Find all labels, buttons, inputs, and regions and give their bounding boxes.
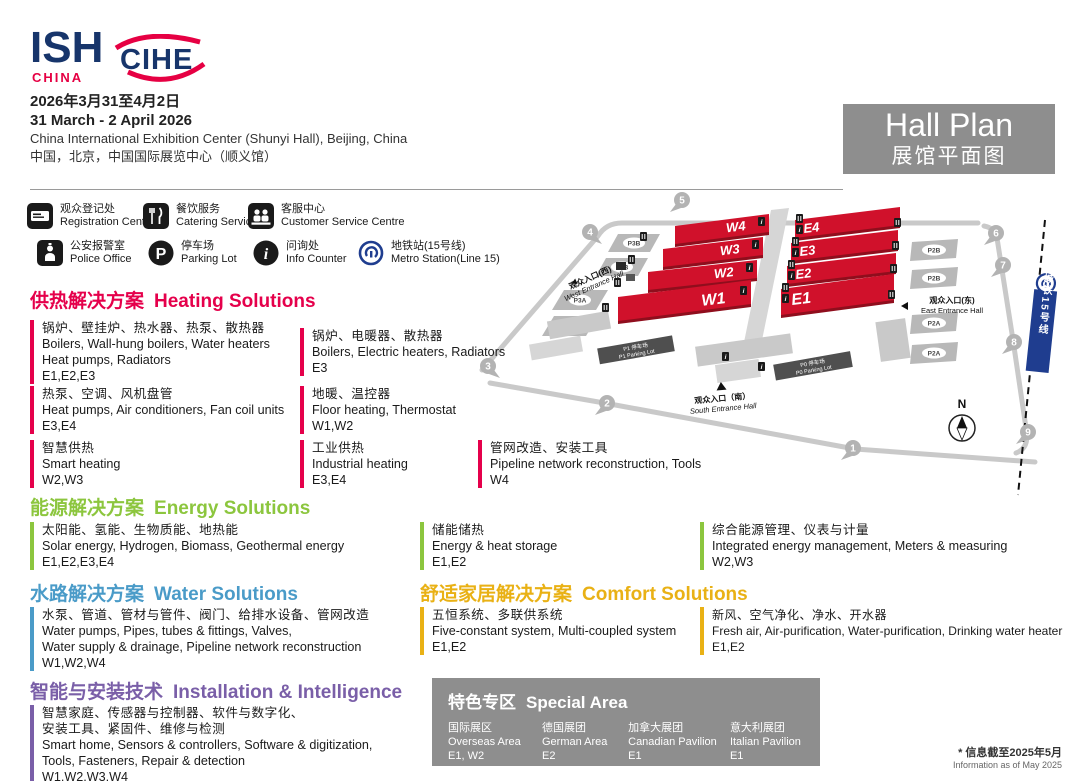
catering-icon bbox=[640, 232, 647, 241]
heating-item-7: 管网改造、安装工具 Pipeline network reconstructio… bbox=[478, 440, 701, 488]
section-title-cn: 能源解决方案 bbox=[30, 498, 144, 519]
legend-catering: 餐饮服务Catering Service bbox=[143, 203, 257, 229]
gate-pin-1: 1 bbox=[841, 440, 861, 460]
metro-line-label: 城铁15号线 bbox=[1035, 271, 1054, 336]
svg-text:i: i bbox=[791, 273, 793, 280]
catering-icon bbox=[894, 218, 901, 227]
legend-label-en: Registration Centre bbox=[60, 216, 155, 229]
gate-pin-6: 6 bbox=[984, 225, 1004, 245]
info-icon: i bbox=[752, 240, 759, 249]
svg-text:7: 7 bbox=[1000, 261, 1006, 272]
section-title-en: Installation & Intelligence bbox=[173, 682, 402, 703]
legend-label-en: Info Counter bbox=[286, 253, 347, 266]
gate-pin-9: 9 bbox=[1016, 424, 1036, 444]
metro-logo-icon bbox=[1036, 273, 1056, 293]
gate-pin-7: 7 bbox=[991, 257, 1011, 277]
special-area-title-cn: 特色专区 bbox=[448, 693, 516, 712]
section-title-en: Water Solutions bbox=[154, 584, 298, 605]
svg-text:4: 4 bbox=[587, 228, 593, 239]
p1-parking-label-cn: P1 停车场 bbox=[623, 341, 649, 353]
water-item-1: 水泵、管道、管材与管件、阀门、给排水设备、管网改造 Water pumps, P… bbox=[30, 607, 369, 671]
heating-item-2: 热泵、空调、风机盘管 Heat pumps, Air conditioners,… bbox=[30, 386, 284, 434]
cihe-logo: CIHE bbox=[112, 34, 207, 86]
central-corridor bbox=[742, 208, 789, 352]
legend-label-en: Police Office bbox=[70, 253, 132, 266]
special-area-col-italian: 意大利展团 Italian Pavilion E1 bbox=[730, 721, 820, 763]
section-title-cn: 舒适家居解决方案 bbox=[420, 584, 572, 605]
svg-text:9: 9 bbox=[1025, 428, 1031, 439]
catering-icon bbox=[892, 241, 899, 250]
info-icon: i bbox=[758, 362, 765, 371]
legend-customer-service: 客服中心Customer Service Centre bbox=[248, 203, 405, 229]
header-divider bbox=[30, 189, 843, 190]
svg-text:i: i bbox=[785, 296, 787, 303]
customer-service-icon: i bbox=[722, 352, 729, 361]
hall-W2 bbox=[648, 260, 757, 290]
info-icon: i bbox=[253, 240, 279, 266]
info-icon: i bbox=[740, 286, 747, 295]
intelligence-section-title: 智能与安装技术Installation & Intelligence bbox=[30, 677, 402, 704]
special-area-col-canadian: 加拿大展团 Canadian Pavilion E1 bbox=[628, 721, 730, 763]
comfort-item-1: 五恒系统、多联供系统 Five-constant system, Multi-c… bbox=[420, 607, 676, 655]
metro-line15-badge: 城铁15号线 bbox=[1026, 270, 1059, 373]
svg-text:i: i bbox=[749, 265, 751, 272]
heating-item-4: 锅炉、电暖器、散热器 Boilers, Electric heaters, Ra… bbox=[300, 328, 505, 376]
ish-logo: ISH bbox=[30, 26, 103, 70]
legend-label-en: Parking Lot bbox=[181, 253, 237, 266]
heating-item-1: 锅炉、壁挂炉、热水器、热泵、散热器 Boilers, Wall-hung boi… bbox=[30, 320, 270, 384]
parking-label: P2B bbox=[928, 276, 941, 283]
gate-pin-5: 5 bbox=[670, 192, 690, 212]
section-title-cn: 水路解决方案 bbox=[30, 584, 144, 605]
venue-en: China International Exhibition Center (S… bbox=[30, 130, 407, 148]
catering-icon bbox=[788, 260, 795, 269]
south-entrance-arrow-icon bbox=[716, 382, 727, 391]
event-info: 2026年3月31至4月2日 31 March - 2 April 2026 C… bbox=[30, 92, 407, 166]
parking-west-group: P3B P3B P3A P3A bbox=[542, 234, 660, 336]
date-cn: 2026年3月31至4月2日 bbox=[30, 92, 407, 111]
hall-label-E1: E1 bbox=[790, 290, 812, 309]
p1-parking-bar: P1 停车场 P1 Parking Lot bbox=[597, 335, 675, 364]
svg-text:8: 8 bbox=[1011, 338, 1017, 349]
svg-text:i: i bbox=[743, 288, 745, 295]
svg-text:5: 5 bbox=[679, 196, 685, 207]
svg-text:i: i bbox=[264, 246, 269, 263]
south-entrance-label: 观众入口（南） South Entrance Hall bbox=[688, 379, 757, 416]
compass-n-label: N bbox=[958, 397, 967, 411]
cihe-logo-text: CIHE bbox=[120, 44, 193, 77]
svg-text:2: 2 bbox=[604, 399, 610, 410]
svg-text:1: 1 bbox=[850, 444, 856, 455]
south-entrance-cn: 观众入口（南） bbox=[694, 391, 751, 406]
heating-item-5: 地暖、温控器 Floor heating, Thermostat W1,W2 bbox=[300, 386, 456, 434]
hall-label-E3: E3 bbox=[799, 242, 817, 259]
catering-icon bbox=[614, 278, 621, 287]
gate-pin-8: 8 bbox=[1002, 334, 1022, 354]
parking-label: P2B bbox=[928, 248, 941, 255]
footnote-cn: * 信息截至2025年5月 bbox=[953, 744, 1062, 760]
catering-icon bbox=[602, 303, 609, 312]
hall-W4 bbox=[675, 214, 769, 244]
west-entrance-arrow-icon bbox=[571, 279, 578, 287]
heating-section-title: 供热解决方案Heating Solutions bbox=[30, 286, 316, 313]
west-building bbox=[529, 336, 583, 361]
special-area-title-en: Special Area bbox=[526, 693, 627, 712]
metro-badge-bg bbox=[1026, 289, 1057, 373]
catering-icon bbox=[796, 214, 803, 223]
west-entrance-kiosk bbox=[616, 262, 626, 270]
comfort-section-title: 舒适家居解决方案Comfort Solutions bbox=[420, 579, 748, 606]
p0-parking-bar: P0 停车场 P0 Parking Lot bbox=[773, 351, 853, 380]
legend-info-counter: i 问询处Info Counter bbox=[253, 240, 347, 266]
section-title-cn: 智能与安装技术 bbox=[30, 682, 163, 703]
footnote: * 信息截至2025年5月 Information as of May 2025 bbox=[953, 744, 1062, 770]
special-area-col-overseas: 国际展区 Overseas Area E1, W2 bbox=[448, 721, 542, 763]
energy-section-title: 能源解决方案Energy Solutions bbox=[30, 493, 310, 520]
heating-item-6: 工业供热 Industrial heating E3,E4 bbox=[300, 440, 408, 488]
special-area-title: 特色专区Special Area bbox=[448, 688, 820, 713]
east-building bbox=[875, 318, 910, 362]
legend-label-cn: 餐饮服务 bbox=[176, 203, 257, 216]
parking-label: P2A bbox=[928, 351, 941, 358]
parking-label: P2A bbox=[928, 321, 941, 328]
parking-icon: P bbox=[148, 240, 174, 266]
west-entrance-en: West Entrance Hall bbox=[563, 269, 625, 303]
hall-W1 bbox=[618, 280, 751, 321]
legend-label-en: Customer Service Centre bbox=[281, 216, 405, 229]
legend-label-cn: 公安报警室 bbox=[70, 240, 132, 253]
hall-plan-page: ISH CHINA CIHE 2026年3月31至4月2日 31 March -… bbox=[0, 0, 1080, 781]
ish-logo-china: CHINA bbox=[32, 70, 83, 85]
customer-service-icon bbox=[248, 203, 274, 229]
east-entrance-en: East Entrance Hall bbox=[921, 306, 983, 315]
legend-metro: 地铁站(15号线)Metro Station(Line 15) bbox=[358, 240, 500, 266]
compass-icon: N bbox=[949, 397, 975, 441]
special-area-col-german: 德国展团 German Area E2 bbox=[542, 721, 628, 763]
hall-label-W1: W1 bbox=[701, 290, 727, 310]
svg-text:i: i bbox=[761, 219, 763, 226]
legend-label-cn: 地铁站(15号线) bbox=[391, 240, 500, 253]
p0-parking-label-en: P0 Parking Lot bbox=[796, 365, 833, 377]
intelligence-item-1: 智慧家庭、传感器与控制器、软件与数字化、 安装工具、紧固件、维修与检测 Smar… bbox=[30, 705, 372, 781]
metro-icon bbox=[358, 240, 384, 266]
info-icon: i bbox=[796, 225, 803, 234]
hall-E2 bbox=[787, 253, 896, 284]
hall-W3 bbox=[663, 237, 763, 267]
legend-label-en: Catering Service bbox=[176, 216, 257, 229]
date-en: 31 March - 2 April 2026 bbox=[30, 111, 407, 130]
south-entrance-building bbox=[715, 359, 761, 383]
metro-line bbox=[1018, 220, 1045, 495]
catering-icon bbox=[792, 237, 799, 246]
hall-plan-title-box: Hall Plan 展馆平面图 bbox=[843, 104, 1055, 174]
legend-label-cn: 客服中心 bbox=[281, 203, 405, 216]
svg-text:6: 6 bbox=[993, 229, 999, 240]
section-title-en: Energy Solutions bbox=[154, 498, 310, 519]
catering-icon bbox=[143, 203, 169, 229]
east-entrance-label: 观众入口(东) East Entrance Hall bbox=[901, 295, 983, 315]
p1-parking-label-en: P1 Parking Lot bbox=[619, 349, 656, 361]
p0-parking-label-cn: P0 停车场 bbox=[800, 357, 826, 369]
heating-item-3: 智慧供热 Smart heating W2,W3 bbox=[30, 440, 120, 488]
hall-E3 bbox=[791, 230, 898, 261]
parking-label: P3A bbox=[574, 298, 587, 305]
halls-group: W4 W3 W2 W1 E4 E3 E2 E1 bbox=[618, 207, 900, 324]
catering-icon bbox=[890, 264, 897, 273]
legend-label-cn: 问询处 bbox=[286, 240, 347, 253]
parking-label: P3B bbox=[616, 265, 629, 272]
svg-text:i: i bbox=[725, 354, 727, 361]
info-icon: i bbox=[758, 217, 765, 226]
west-building bbox=[547, 311, 611, 339]
svg-text:i: i bbox=[755, 242, 757, 249]
parking-label: P3A bbox=[564, 324, 577, 331]
catering-icon bbox=[782, 283, 789, 292]
water-section-title: 水路解决方案Water Solutions bbox=[30, 579, 298, 606]
parking-east-group: P2B P2B P2A P2A bbox=[910, 239, 958, 364]
west-entrance-kiosk bbox=[626, 274, 635, 281]
legend-parking: P 停车场Parking Lot bbox=[148, 240, 237, 266]
hall-label-W4: W4 bbox=[725, 218, 747, 235]
svg-text:P: P bbox=[156, 246, 167, 263]
west-entrance-cn: 观众入口(西) bbox=[567, 264, 613, 292]
south-hall-building bbox=[695, 333, 793, 366]
east-entrance-cn: 观众入口(东) bbox=[929, 295, 975, 305]
registration-icon bbox=[27, 203, 53, 229]
legend-label-cn: 观众登记处 bbox=[60, 203, 155, 216]
info-icon: i bbox=[792, 248, 799, 257]
parking-label: P3B bbox=[628, 241, 641, 248]
hall-E1 bbox=[781, 274, 894, 315]
catering-icon bbox=[628, 255, 635, 264]
svg-text:i: i bbox=[799, 227, 801, 234]
hall-label-E4: E4 bbox=[803, 219, 821, 236]
hall-label-W2: W2 bbox=[713, 264, 735, 281]
legend-police: 公安报警室Police Office bbox=[37, 240, 132, 266]
east-entrance-arrow-icon bbox=[901, 302, 908, 310]
section-title-en: Heating Solutions bbox=[154, 291, 316, 312]
info-icon: i bbox=[788, 271, 795, 280]
hall-label-W3: W3 bbox=[719, 241, 741, 258]
info-icon: i bbox=[782, 294, 789, 303]
legend-label-en: Metro Station(Line 15) bbox=[391, 253, 500, 266]
hall-label-E2: E2 bbox=[795, 265, 813, 282]
energy-item-3: 综合能源管理、仪表与计量 Integrated energy managemen… bbox=[700, 522, 1007, 570]
special-area-box: 特色专区Special Area 国际展区 Overseas Area E1, … bbox=[432, 678, 820, 766]
energy-item-1: 太阳能、氢能、生物质能、地热能 Solar energy, Hydrogen, … bbox=[30, 522, 344, 570]
section-title-en: Comfort Solutions bbox=[582, 584, 748, 605]
west-entrance-label: 观众入口(西) West Entrance Hall bbox=[559, 260, 626, 304]
road-west-north bbox=[482, 223, 978, 370]
hall-plan-title-cn: 展馆平面图 bbox=[843, 144, 1055, 170]
gate-pin-2: 2 bbox=[595, 395, 615, 415]
info-icon: i bbox=[746, 263, 753, 272]
legend-registration: 观众登记处Registration Centre bbox=[27, 203, 155, 229]
svg-text:i: i bbox=[761, 364, 763, 371]
energy-item-2: 储能储热 Energy & heat storage E1,E2 bbox=[420, 522, 557, 570]
catering-icon bbox=[888, 290, 895, 299]
legend-label-cn: 停车场 bbox=[181, 240, 237, 253]
venue-cn: 中国，北京，中国国际展览中心（顺义馆） bbox=[30, 148, 407, 166]
section-title-cn: 供热解决方案 bbox=[30, 291, 144, 312]
police-icon bbox=[37, 240, 63, 266]
gate-pin-4: 4 bbox=[582, 224, 602, 244]
footnote-en: Information as of May 2025 bbox=[953, 760, 1062, 770]
south-entrance-en: South Entrance Hall bbox=[690, 401, 758, 416]
hall-E4 bbox=[795, 207, 900, 238]
comfort-item-2: 新风、空气净化、净水、开水器 Fresh air, Air-purificati… bbox=[700, 607, 1062, 655]
road-east bbox=[984, 226, 1027, 453]
svg-text:i: i bbox=[795, 250, 797, 257]
hall-plan-title-en: Hall Plan bbox=[843, 106, 1055, 144]
